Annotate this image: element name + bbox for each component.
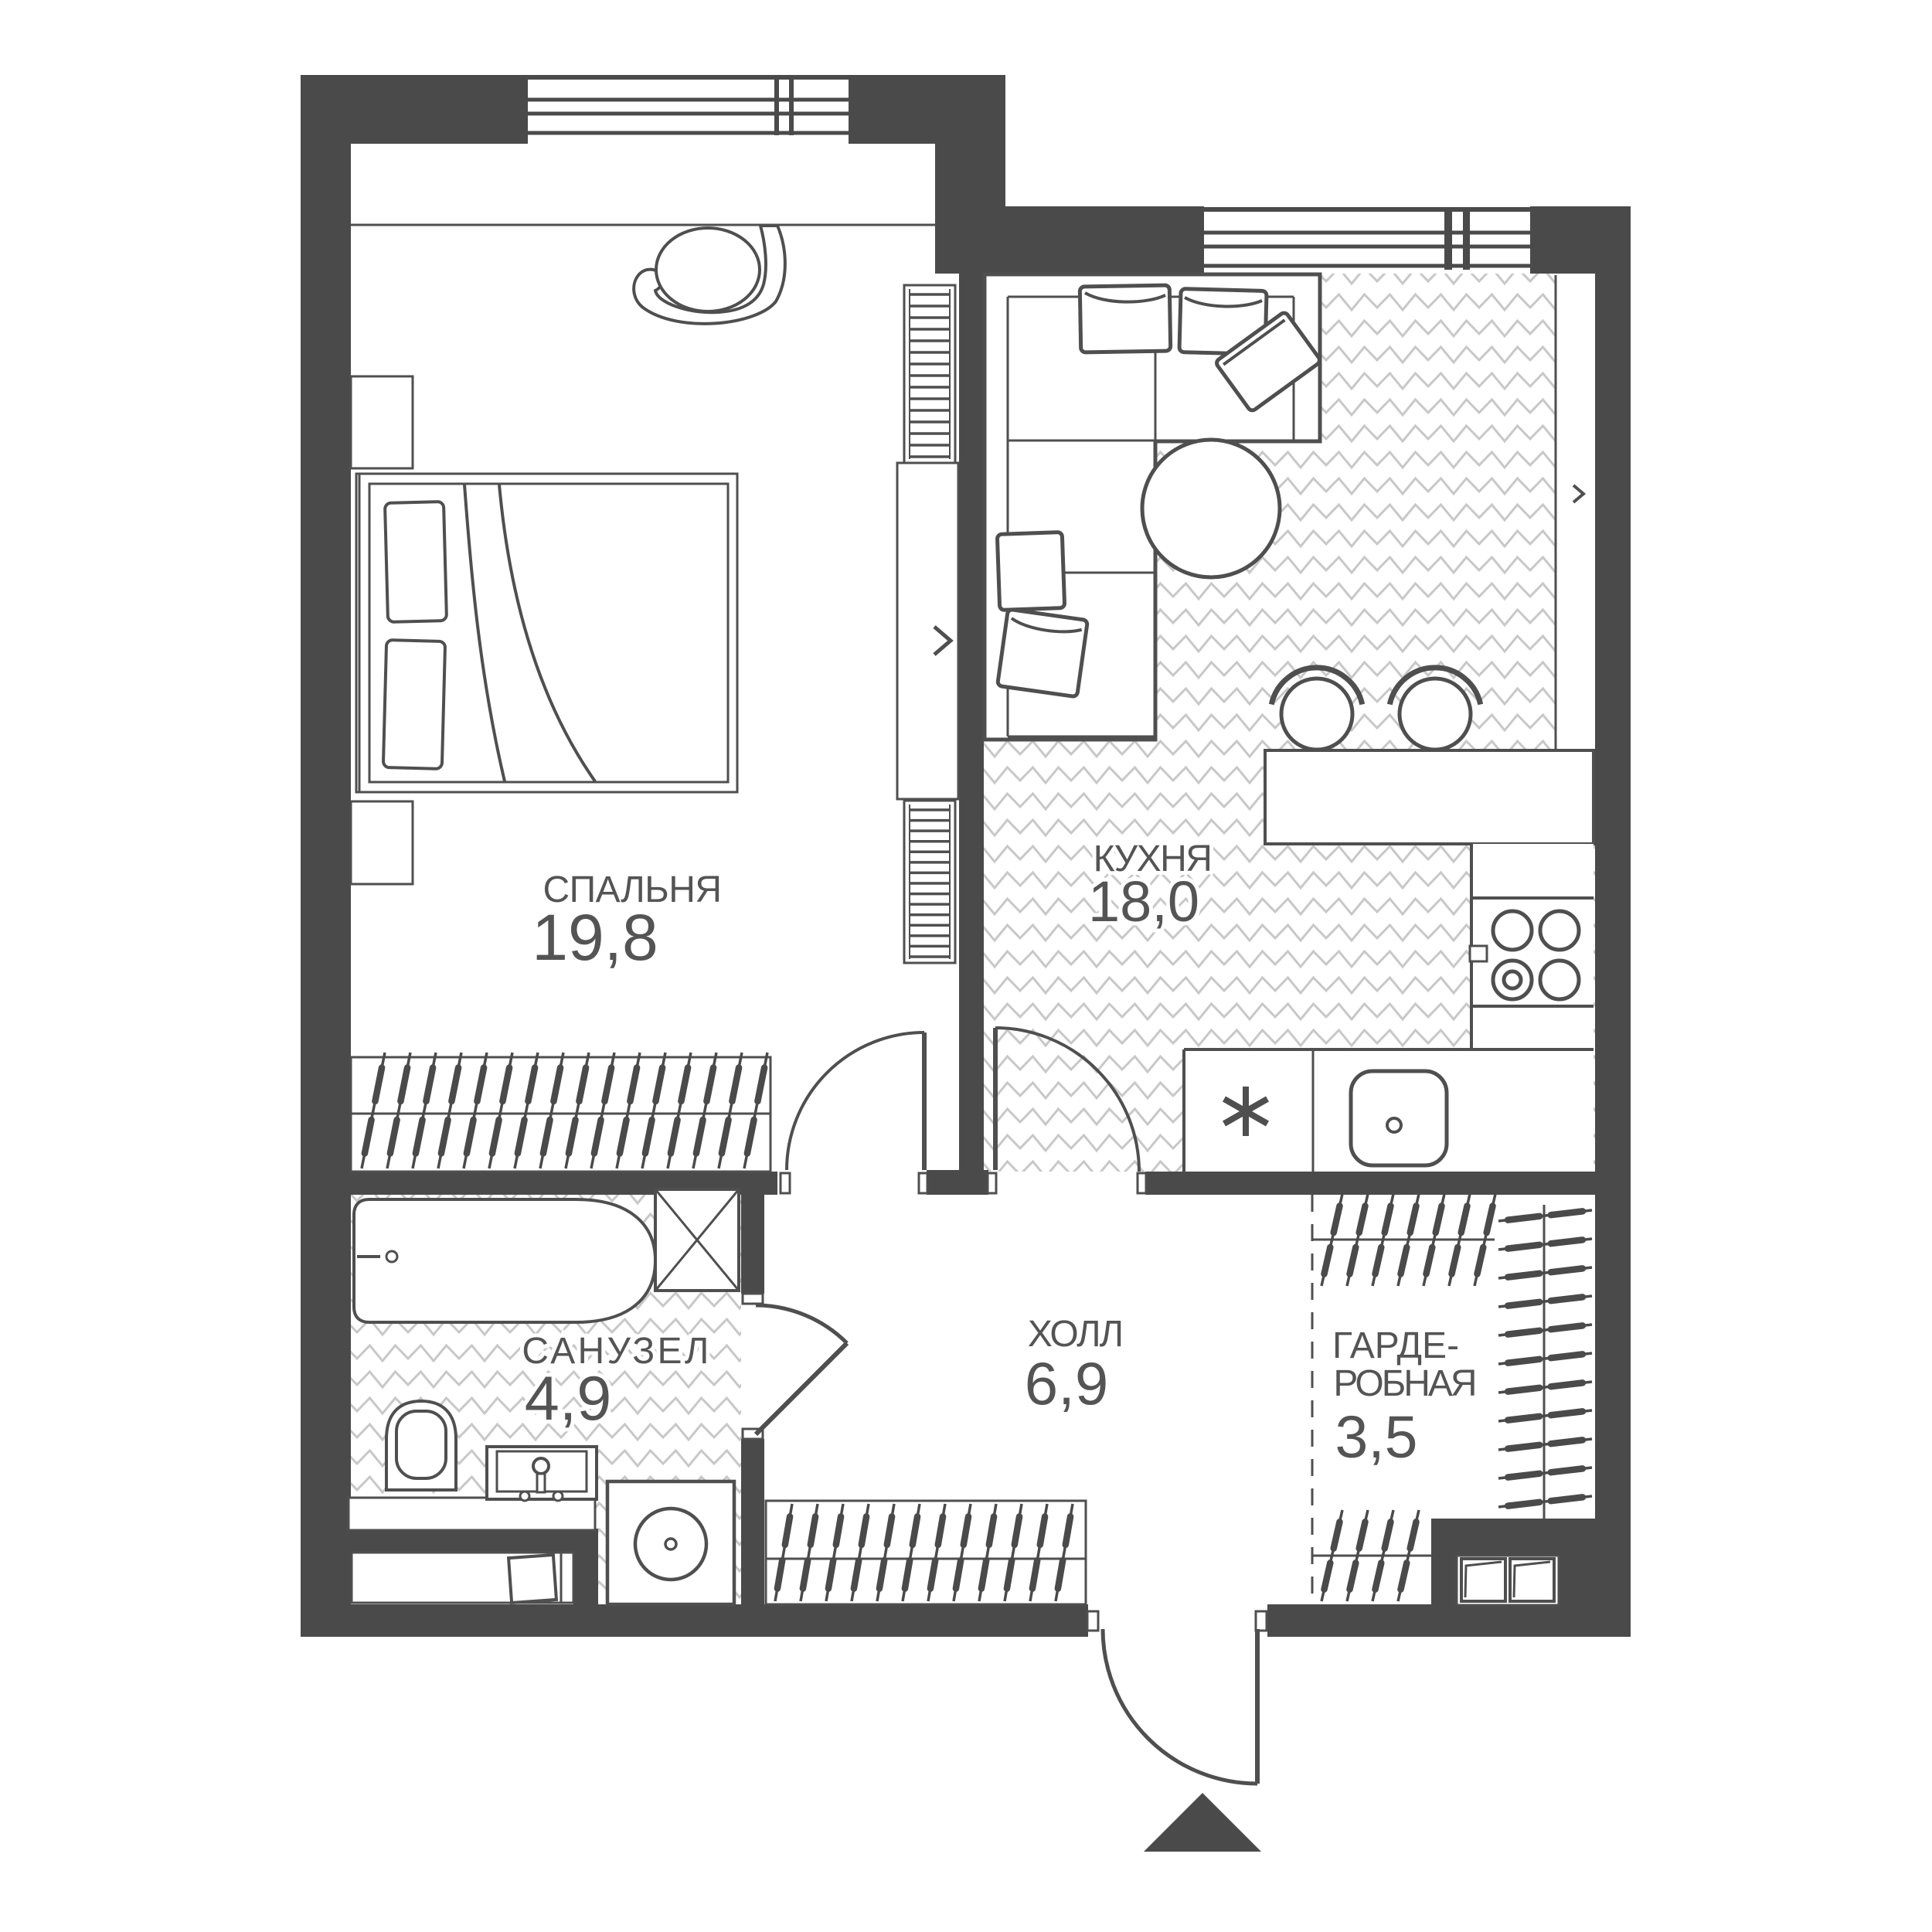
- svg-text:6,9: 6,9: [1025, 1349, 1108, 1417]
- svg-text:4,9: 4,9: [525, 1364, 612, 1434]
- svg-text:19,8: 19,8: [532, 901, 658, 974]
- svg-text:3,5: 3,5: [1335, 1404, 1417, 1471]
- svg-text:РОБНАЯ: РОБНАЯ: [1333, 1363, 1475, 1404]
- svg-text:ГАРДЕ-: ГАРДЕ-: [1332, 1325, 1459, 1366]
- svg-text:18,0: 18,0: [1088, 869, 1199, 934]
